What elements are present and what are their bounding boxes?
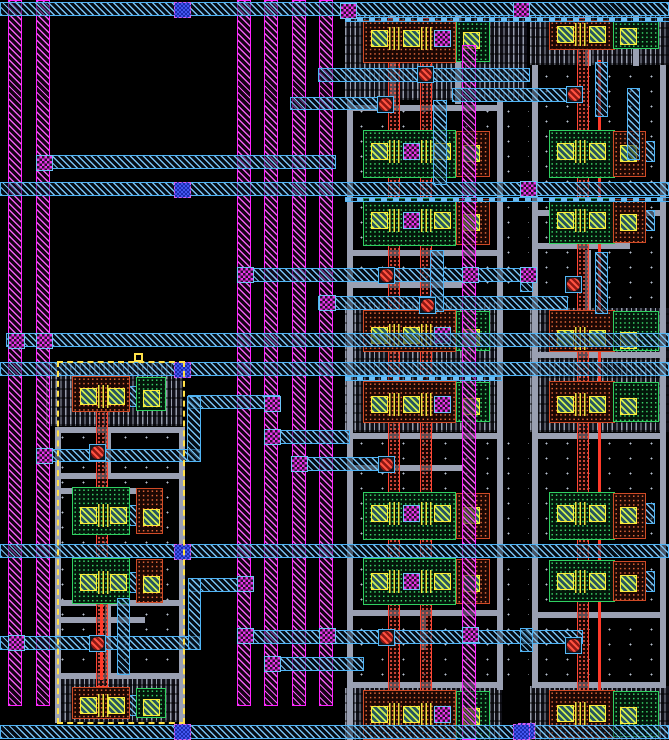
contact-yellow <box>371 143 388 160</box>
contact-yellow <box>620 575 637 592</box>
poly-contact <box>417 66 434 83</box>
via1-2 <box>237 628 254 644</box>
poly-contact <box>377 96 394 113</box>
li-wire <box>347 100 353 740</box>
m2-stripe <box>8 0 22 706</box>
poly-finger <box>575 570 587 593</box>
via1-2 <box>36 155 53 171</box>
poly-contact <box>378 267 395 284</box>
poly-finger <box>575 23 587 46</box>
via1-2 <box>434 396 451 413</box>
via1-2 <box>520 267 537 283</box>
contact-yellow <box>403 706 420 723</box>
via1-2 <box>36 448 53 464</box>
contact-yellow <box>371 212 388 229</box>
contact-yellow <box>589 505 606 522</box>
contact-yellow <box>620 28 637 45</box>
contact-yellow <box>589 705 606 722</box>
via2-3 <box>174 724 191 740</box>
via1-2 <box>319 628 336 644</box>
poly-contact <box>419 297 436 314</box>
via1-2 <box>264 656 281 672</box>
contact-yellow <box>557 705 574 722</box>
poly-finger <box>421 703 433 726</box>
contact-yellow <box>371 573 388 590</box>
contact-yellow <box>620 507 637 524</box>
contact-yellow <box>557 212 574 229</box>
poly-finger <box>575 502 587 525</box>
contact-yellow <box>557 573 574 590</box>
via2-3 <box>174 182 191 198</box>
via1-2 <box>237 267 254 283</box>
poly-finger <box>575 702 587 725</box>
poly-finger <box>575 140 587 163</box>
m1-wire-vertical <box>188 578 201 650</box>
contact-yellow <box>557 26 574 43</box>
via1-2 <box>264 429 281 445</box>
via1-2 <box>8 635 25 651</box>
cell-origin-marker <box>134 353 143 362</box>
poly-finger <box>421 209 433 232</box>
m1-wire-vertical <box>433 100 447 185</box>
poly-finger <box>389 703 401 726</box>
poly-finger <box>421 570 433 593</box>
poly-finger <box>421 502 433 525</box>
via1-2 <box>403 573 420 590</box>
poly-finger <box>389 140 401 163</box>
poly-finger <box>389 570 401 593</box>
m1-wire <box>0 2 669 16</box>
contact-yellow <box>620 214 637 231</box>
m1-wire <box>6 333 669 347</box>
via2-3 <box>174 2 191 18</box>
via2-3 <box>513 724 530 740</box>
contact-yellow <box>371 505 388 522</box>
m1-wire-vertical <box>187 396 201 462</box>
via1-2 <box>403 505 420 522</box>
contact-yellow <box>434 505 451 522</box>
m1-wire-vertical <box>595 252 608 314</box>
m1-track <box>345 376 502 381</box>
via1-2 <box>434 30 451 47</box>
contact-yellow <box>589 573 606 590</box>
contact-yellow <box>371 396 388 413</box>
m1-wire <box>36 155 336 169</box>
poly-finger <box>421 393 433 416</box>
via1-2 <box>513 2 530 18</box>
poly-contact <box>378 456 395 473</box>
via1-2 <box>520 181 537 197</box>
selection-box[interactable] <box>57 361 185 724</box>
via1-2 <box>340 3 357 19</box>
via1-2 <box>434 706 451 723</box>
via1-2 <box>462 627 479 643</box>
poly-contact <box>565 637 582 654</box>
contact-yellow <box>434 212 451 229</box>
via1-2 <box>36 333 53 349</box>
m1-wire-vertical <box>520 628 533 652</box>
m2-stripe <box>237 0 251 706</box>
m1-wire-vertical <box>627 88 640 160</box>
m1-wire <box>0 725 669 739</box>
contact-yellow <box>589 212 606 229</box>
via1-2 <box>291 456 308 472</box>
via1-2 <box>264 396 281 412</box>
poly-contact <box>378 629 395 646</box>
via1-2 <box>462 267 479 283</box>
m2-stripe <box>36 0 50 706</box>
poly-finger <box>421 27 433 50</box>
poly-finger <box>421 140 433 163</box>
m1-wire <box>290 97 380 110</box>
poly-finger <box>389 502 401 525</box>
contact-yellow <box>371 706 388 723</box>
contact-yellow <box>403 30 420 47</box>
m1-wire <box>452 88 568 102</box>
contact-yellow <box>557 143 574 160</box>
m1-wire-vertical <box>595 62 608 117</box>
m1-wire <box>0 182 669 196</box>
contact-yellow <box>371 30 388 47</box>
via1-2 <box>403 143 420 160</box>
poly-finger <box>575 209 587 232</box>
contact-yellow <box>589 396 606 413</box>
contact-yellow <box>557 505 574 522</box>
via1-2 <box>237 576 254 592</box>
poly-finger <box>389 393 401 416</box>
contact-yellow <box>620 398 637 415</box>
contact-yellow <box>557 396 574 413</box>
li-wire <box>353 282 463 288</box>
layout-canvas[interactable] <box>0 0 669 740</box>
contact-yellow <box>589 26 606 43</box>
contact-yellow <box>589 143 606 160</box>
m1-track <box>345 197 669 202</box>
contact-yellow <box>403 396 420 413</box>
poly-contact <box>565 276 582 293</box>
poly-finger <box>389 27 401 50</box>
m2-stripe <box>264 0 278 706</box>
poly-finger <box>575 393 587 416</box>
poly-contact <box>566 86 583 103</box>
contact-yellow <box>434 573 451 590</box>
poly-finger <box>389 209 401 232</box>
via1-2 <box>403 212 420 229</box>
m1-track <box>345 17 669 22</box>
via1-2 <box>8 333 25 349</box>
contact-yellow <box>620 707 637 724</box>
via1-2 <box>319 295 336 311</box>
